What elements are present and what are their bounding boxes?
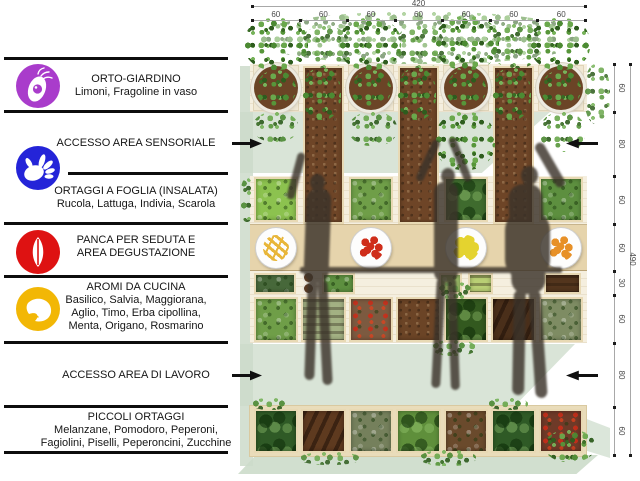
legend-text-line: Rucola, Lattuga, Indivia, Scarola bbox=[38, 198, 234, 211]
dim-tick bbox=[613, 63, 616, 66]
legend-divider bbox=[4, 222, 228, 225]
legend-text-line: PANCA PER SEDUTA E bbox=[38, 234, 234, 247]
legend-text-line: Limoni, Fragoline in vaso bbox=[38, 86, 234, 99]
dim-tick bbox=[584, 19, 587, 22]
dim-tick bbox=[613, 294, 616, 297]
legend-divider bbox=[4, 275, 228, 278]
dim-tick bbox=[299, 19, 302, 22]
legend-divider bbox=[68, 172, 228, 175]
legend-item-panca-degustazione: PANCA PER SEDUTA EAREA DEGUSTAZIONE bbox=[38, 234, 234, 260]
person-shadow-part bbox=[528, 290, 548, 399]
person-shadow-part bbox=[317, 280, 332, 385]
dim-segment-right: 60 bbox=[613, 311, 629, 327]
legend-item-piccoli-ortaggi: PICCOLI ORTAGGIMelanzane, Pomodoro, Pepe… bbox=[38, 411, 234, 450]
legend-text-line: PICCOLI ORTAGGI bbox=[38, 411, 234, 424]
legend-divider bbox=[4, 405, 228, 408]
person-shadow-part bbox=[431, 278, 446, 388]
dim-tick bbox=[251, 5, 254, 8]
dim-tick bbox=[613, 406, 616, 409]
legend-text-line: Aglio, Timo, Erba cipollina, bbox=[38, 307, 234, 320]
dim-tick bbox=[613, 270, 616, 273]
legend-text-line: Fagiolini, Piselli, Peperoncini, Zucchin… bbox=[38, 437, 234, 450]
dim-segment-right: 80 bbox=[613, 136, 629, 152]
dim-segment-top: 60 bbox=[407, 11, 431, 19]
eye-icon bbox=[16, 64, 60, 108]
legend-text-line: Menta, Origano, Rosmarino bbox=[38, 320, 234, 333]
person-shadow-part bbox=[512, 290, 526, 395]
dim-tick bbox=[441, 19, 444, 22]
dim-segment-right: 60 bbox=[613, 192, 629, 208]
garden-plan-page: 420606060606060606080606030608060490 ORT… bbox=[0, 0, 640, 481]
dim-segment-right: 60 bbox=[613, 423, 629, 439]
legend-item-orto-giardino: ORTO-GIARDINOLimoni, Fragoline in vaso bbox=[38, 73, 234, 99]
dim-segment-right: 80 bbox=[613, 367, 629, 383]
dim-tick bbox=[251, 19, 254, 22]
person-shadow-part bbox=[415, 138, 441, 182]
dim-segment-right: 30 bbox=[613, 275, 629, 291]
dim-tick bbox=[536, 19, 539, 22]
legend-item-accesso-area-sensoriale: ACCESSO AREA SENSORIALE bbox=[38, 137, 234, 150]
person-shadow-part bbox=[286, 152, 306, 200]
lips-icon bbox=[16, 230, 60, 274]
dim-segment-top: 60 bbox=[264, 11, 288, 19]
nose-icon bbox=[16, 287, 60, 331]
dim-segment-top: 60 bbox=[359, 11, 383, 19]
legend-text-line: ORTAGGI A FOGLIA (INSALATA) bbox=[38, 185, 234, 198]
person-shadow-part bbox=[447, 278, 460, 390]
legend-text-line: AROMI DA CUCINA bbox=[38, 281, 234, 294]
legend-text-line: ACCESSO AREA SENSORIALE bbox=[38, 137, 234, 150]
legend-divider bbox=[4, 451, 228, 454]
person-shadow-part bbox=[533, 141, 567, 189]
dim-segment-top: 60 bbox=[549, 11, 573, 19]
dim-segment-top: 60 bbox=[454, 11, 478, 19]
legend-text-line: Basilico, Salvia, Maggiorana, bbox=[38, 294, 234, 307]
legend-divider bbox=[4, 110, 228, 113]
legend-item-aromi-da-cucina: AROMI DA CUCINABasilico, Salvia, Maggior… bbox=[38, 281, 234, 333]
dim-tick bbox=[613, 175, 616, 178]
dim-segment-top: 60 bbox=[502, 11, 526, 19]
person-shadow-part bbox=[304, 280, 317, 380]
dim-tick bbox=[613, 454, 616, 457]
dim-tick bbox=[489, 19, 492, 22]
legend-divider bbox=[4, 341, 228, 344]
dim-tick bbox=[394, 19, 397, 22]
legend-text-line: AREA DEGUSTAZIONE bbox=[38, 247, 234, 260]
dim-tick bbox=[613, 223, 616, 226]
legend-divider bbox=[4, 57, 228, 60]
dim-tick bbox=[613, 342, 616, 345]
dim-tick bbox=[629, 454, 632, 457]
dim-line-top-segments bbox=[252, 20, 585, 21]
dim-tick bbox=[629, 63, 632, 66]
legend-text-line: Melanzane, Pomodoro, Peperoni, bbox=[38, 424, 234, 437]
legend-item-accesso-area-di-lavoro: ACCESSO AREA DI LAVORO bbox=[38, 369, 234, 382]
person-shadow-part bbox=[521, 166, 538, 185]
person-shadow-part bbox=[300, 267, 562, 273]
legend-item-ortaggi-a-foglia: ORTAGGI A FOGLIA (INSALATA)Rucola, Lattu… bbox=[38, 185, 234, 211]
legend-text-line: ORTO-GIARDINO bbox=[38, 73, 234, 86]
dim-tick bbox=[346, 19, 349, 22]
hand-icon bbox=[16, 146, 60, 190]
dim-line-right-segments bbox=[614, 64, 615, 455]
dim-segment-top: 60 bbox=[311, 11, 335, 19]
dim-tick bbox=[613, 111, 616, 114]
dim-total-top: 420 bbox=[403, 0, 435, 8]
legend-text-line: ACCESSO AREA DI LAVORO bbox=[38, 369, 234, 382]
dim-segment-right: 60 bbox=[613, 80, 629, 96]
dim-total-right: 490 bbox=[624, 251, 640, 267]
dim-tick bbox=[584, 5, 587, 8]
